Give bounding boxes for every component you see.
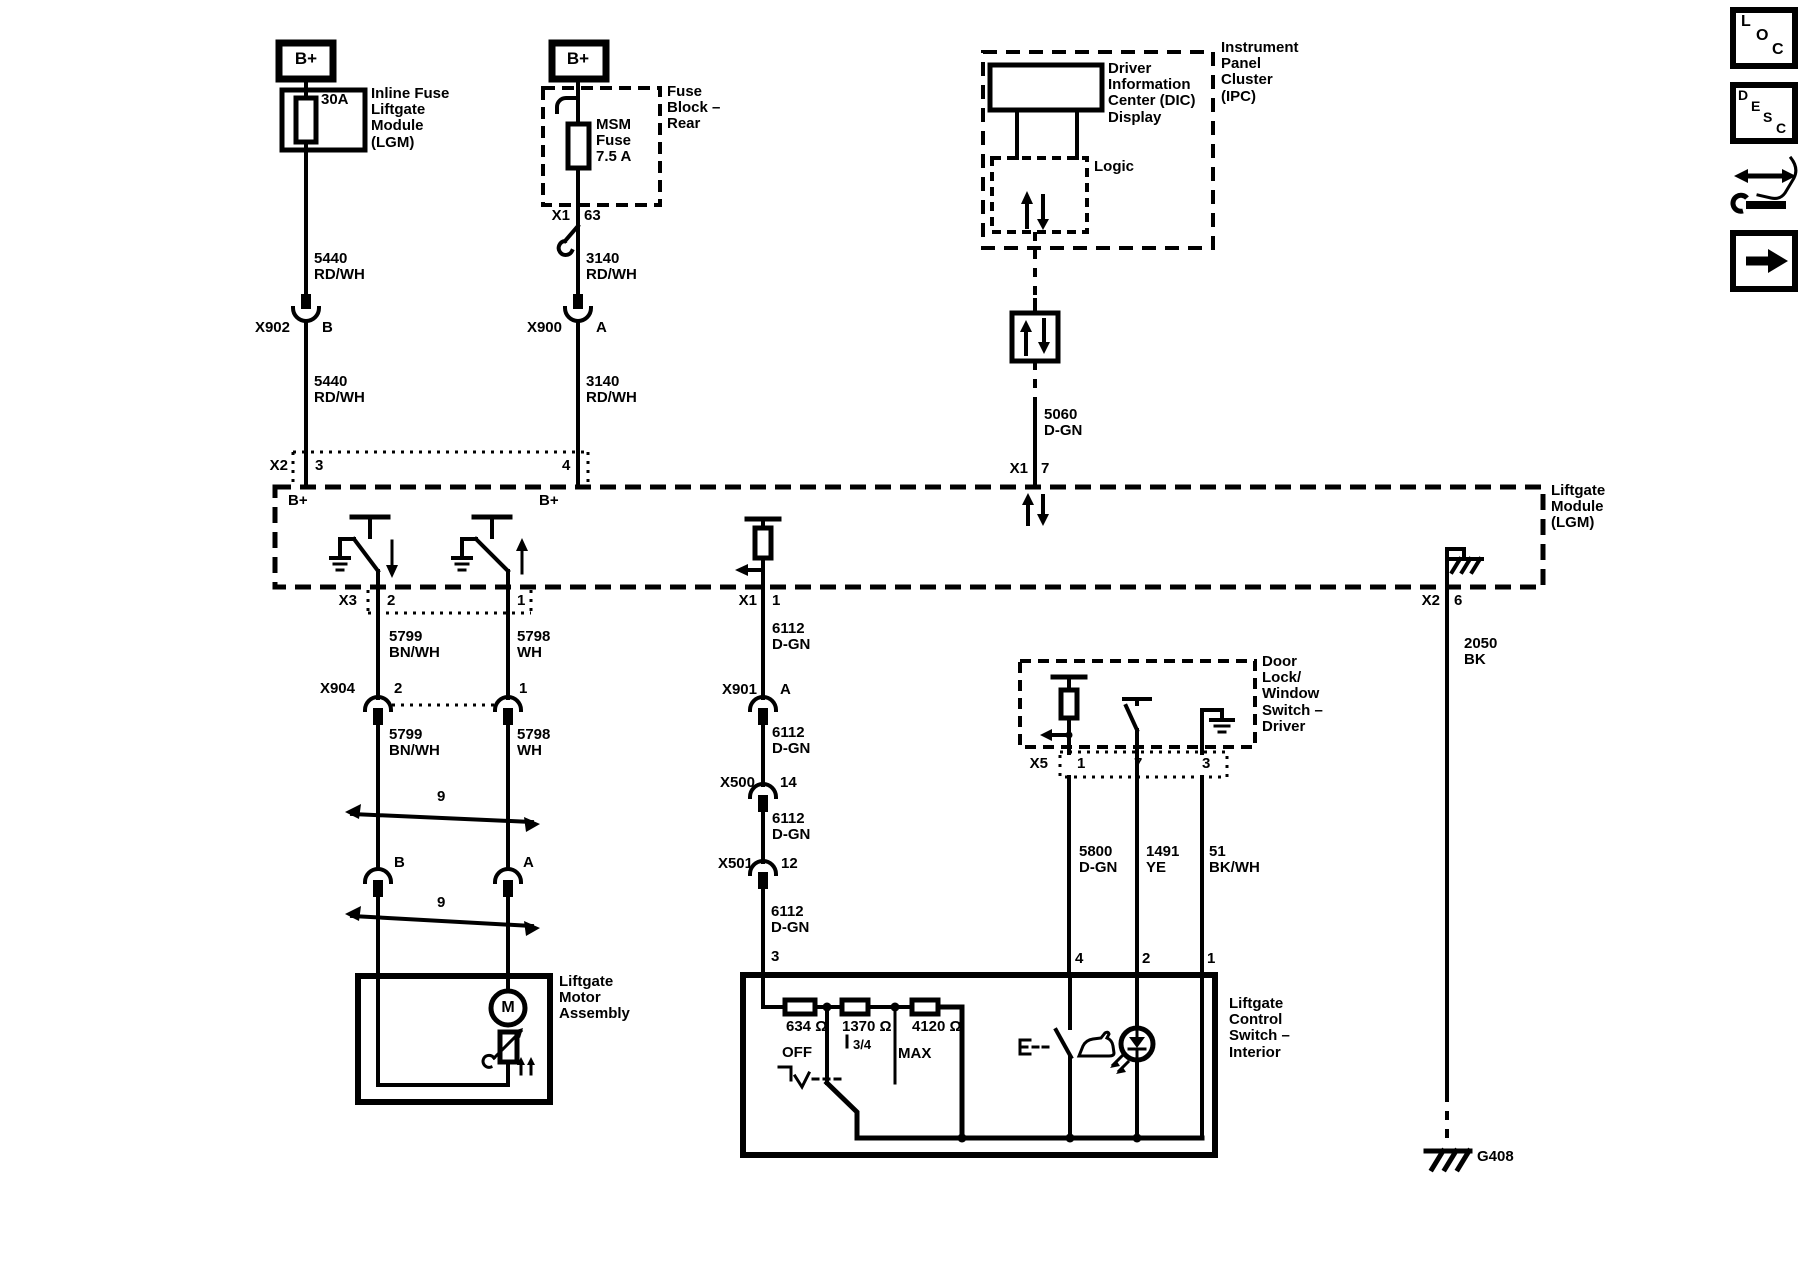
wire-2050: 2050 BK (1464, 636, 1497, 668)
loc-letter-c: C (1772, 41, 1784, 58)
conn-x2-label: X2 (270, 458, 288, 474)
lgm-bplus-left: B+ (288, 493, 308, 509)
conn-x902: X902 (255, 320, 290, 336)
motor-m: M (501, 999, 514, 1016)
wire-5798-lower: 5798 WH (517, 727, 550, 759)
lcs-pin-3: 3 (771, 949, 779, 965)
resistor-4120: 4120 Ω (912, 1019, 962, 1035)
g408-ground-icon (1426, 1151, 1470, 1169)
resistor-4120-icon (912, 1000, 938, 1014)
conn-x2-6: X2 (1422, 593, 1440, 609)
wire-6112-3: 6112 D-GN (772, 811, 810, 843)
resistor-634: 634 Ω (786, 1019, 827, 1035)
conn-b: B (394, 855, 405, 871)
door-lock-window-switch (1020, 661, 1255, 975)
lcs-pin-4: 4 (1075, 951, 1083, 967)
conn-x2-pin-4: 4 (562, 458, 570, 474)
conn-x901: X901 (722, 682, 757, 698)
liftgate-vehicle-icon (1079, 1032, 1114, 1056)
lgm-ground-icon (1447, 549, 1482, 587)
conn-x2-pin-6: 6 (1454, 593, 1462, 609)
connector-x2-top-icon (293, 452, 588, 487)
connector-x902-icon (293, 294, 319, 321)
lgm-caption: Liftgate Module (LGM) (1551, 483, 1605, 532)
wire-6112-2: 6112 D-GN (772, 725, 810, 757)
wire-3140-upper: 3140 RD/WH (586, 251, 637, 283)
conn-x904: X904 (320, 681, 355, 697)
conn-x1-pin-7: 7 (1041, 461, 1049, 477)
switch-pullup-icon (1040, 677, 1085, 753)
conn-x902-pin-b: B (322, 320, 333, 336)
bus-clip-icon (557, 98, 578, 112)
resistor-1370-icon (842, 1000, 868, 1014)
wire-1491: 1491 YE (1146, 844, 1179, 876)
wrench-icon (1733, 195, 1747, 211)
conn-x900-pin-a: A (596, 320, 607, 336)
wiring-diagram-page: B+30AInline Fuse Liftgate Module (LGM)54… (0, 0, 1800, 1280)
up-down-arrows-icon (1022, 493, 1049, 526)
dic-display-box (990, 65, 1102, 110)
msm-fuse-caption: MSM Fuse 7.5 A (596, 117, 631, 166)
next-page-button[interactable] (1733, 233, 1795, 289)
conn-x5-pin-1: 1 (1077, 756, 1085, 772)
switch-pos-34: 3/4 (853, 1038, 871, 1052)
conn-x900: X900 (527, 320, 562, 336)
bplus-left-label: B+ (295, 50, 317, 68)
double-up-arrow-icon (517, 1057, 535, 1074)
connector-x904-icon (365, 697, 521, 725)
conn-a: A (523, 855, 534, 871)
twisted-pair-9-upper: 9 (437, 789, 445, 805)
dic-caption: Driver Information Center (DIC) Display (1108, 61, 1196, 126)
fuse-30a-rating: 30A (321, 92, 349, 108)
momentary-switch-icon (1020, 975, 1075, 1143)
off-detent-icon (779, 1067, 844, 1087)
wire-5440-upper: 5440 RD/WH (314, 251, 365, 283)
resistor-634-icon (785, 1000, 815, 1014)
up-down-arrows-icon (1021, 191, 1049, 230)
illumination-led-icon (1110, 975, 1153, 1143)
connector-x900-icon (565, 294, 591, 321)
wire-5440-lower: 5440 RD/WH (314, 374, 365, 406)
fuse-element-msm (568, 124, 589, 168)
lcs-caption: Liftgate Control Switch – Interior (1229, 996, 1290, 1061)
conn-x5-pin-3: 3 (1202, 756, 1210, 772)
conn-x501-pin-12: 12 (781, 856, 798, 872)
logic-caption: Logic (1094, 159, 1134, 175)
wire-51: 51 BK/WH (1209, 844, 1260, 876)
lgm-bplus-right: B+ (539, 493, 559, 509)
wire-repair-tools-button[interactable] (1733, 158, 1796, 211)
conn-x500-pin-14: 14 (780, 775, 797, 791)
conn-x500: X500 (720, 775, 755, 791)
desc-letter-c: C (1776, 121, 1786, 136)
wire-5060: 5060 D-GN (1044, 407, 1082, 439)
conn-x904-pin-1: 1 (519, 681, 527, 697)
conn-x501: X501 (718, 856, 753, 872)
lcs-pin-2: 2 (1142, 951, 1150, 967)
conn-x3-pin-2: 2 (387, 593, 395, 609)
conn-x901-pin-a: A (780, 682, 791, 698)
connector-b-a-icon (365, 869, 521, 897)
liftgate-module (275, 452, 1543, 613)
conn-x5: X5 (1030, 756, 1048, 772)
conn-x3-pin-1: 1 (517, 593, 525, 609)
wire-5799-lower: 5799 BN/WH (389, 727, 440, 759)
desc-letter-s: S (1763, 110, 1772, 125)
wire-5800: 5800 D-GN (1079, 844, 1117, 876)
ipc-caption: Instrument Panel Cluster (IPC) (1221, 40, 1299, 105)
loc-letter-l: L (1741, 13, 1751, 30)
wiring-diagram-canvas (0, 0, 1800, 1280)
desc-letter-e: E (1751, 99, 1760, 114)
conn-x5-pin-7: 7 (1134, 756, 1142, 772)
down-relay-switch-icon (331, 517, 398, 578)
conn-x1-63: X1 (552, 208, 570, 224)
wire-5799-upper: 5799 BN/WH (389, 629, 440, 661)
twisted-pair-icon (345, 804, 540, 832)
lcs-pin-1: 1 (1207, 951, 1215, 967)
connector-x501-icon (750, 861, 776, 889)
inline-fuse-caption: Inline Fuse Liftgate Module (LGM) (371, 86, 449, 151)
door-switch-icon (1124, 699, 1150, 753)
ground-wire-branch (1426, 587, 1470, 1169)
connector-x901-icon (750, 697, 776, 725)
dic-signal-wire (1012, 232, 1058, 487)
loc-letter-o: O (1756, 27, 1768, 44)
desc-letter-d: D (1738, 88, 1748, 103)
twisted-pair-9-lower: 9 (437, 895, 445, 911)
ground-g408: G408 (1477, 1149, 1514, 1165)
conn-x2-pin-3: 3 (315, 458, 323, 474)
up-relay-switch-icon (453, 517, 528, 573)
liftgate-control-switch (743, 975, 1215, 1155)
conn-x1-pin-63: 63 (584, 208, 601, 224)
bplus-right-label: B+ (567, 50, 589, 68)
motor-caption: Liftgate Motor Assembly (559, 974, 630, 1023)
switch-input-driver-icon (735, 519, 779, 587)
conn-x1-7: X1 (1010, 461, 1028, 477)
conn-x904-pin-2: 2 (394, 681, 402, 697)
wire-6112-4: 6112 D-GN (771, 904, 809, 936)
switch-pos-off: OFF (782, 1045, 812, 1061)
conn-x1-1: X1 (739, 593, 757, 609)
resistor-1370: 1370 Ω (842, 1019, 892, 1035)
conn-x1-pin-1: 1 (772, 593, 780, 609)
switch-pos-max: MAX (898, 1046, 931, 1062)
terminal-hook-icon (559, 226, 578, 255)
liftgate-motor-assembly (358, 976, 550, 1102)
fuse-element-30a (296, 98, 316, 142)
signal-box-icon (1012, 313, 1058, 361)
wire-6112-1: 6112 D-GN (772, 621, 810, 653)
wire-5798-upper: 5798 WH (517, 629, 550, 661)
conn-x3: X3 (339, 593, 357, 609)
door-lock-caption: Door Lock/ Window Switch – Driver (1262, 654, 1323, 735)
wire-3140-lower: 3140 RD/WH (586, 374, 637, 406)
fuse-block-caption: Fuse Block – Rear (667, 84, 720, 133)
